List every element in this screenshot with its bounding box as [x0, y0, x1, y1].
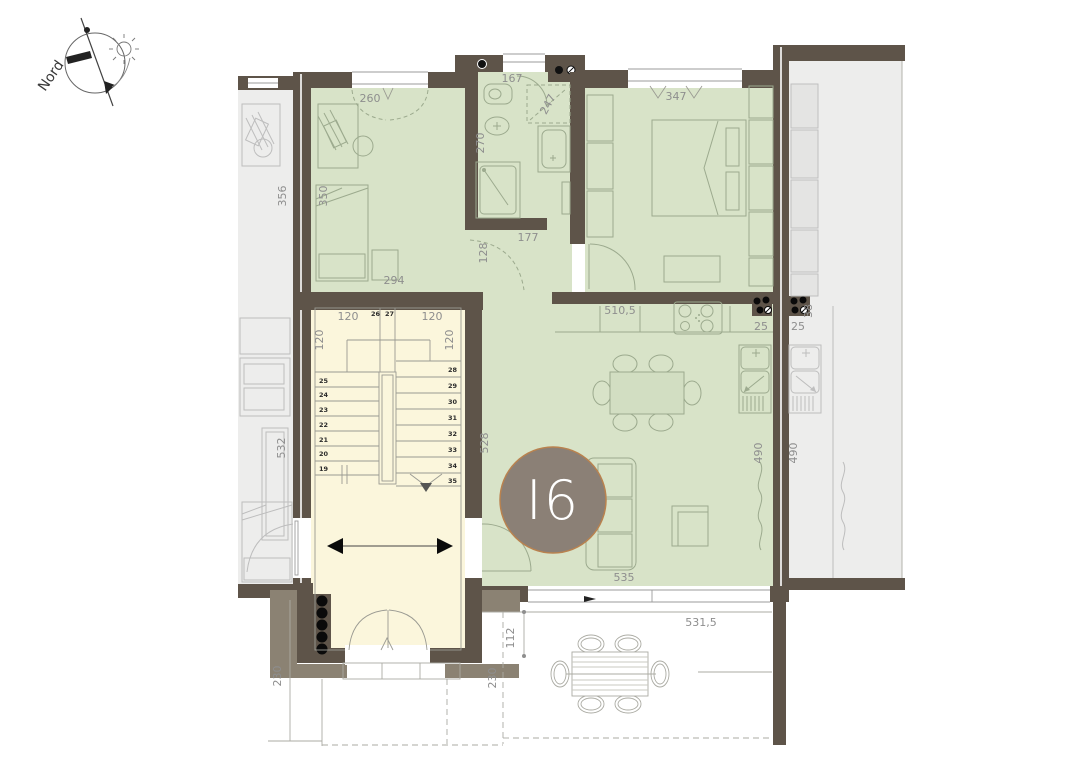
dim-terrace-depth: 112	[504, 628, 517, 649]
wardrobe	[791, 274, 818, 296]
terrace-divider-wall	[773, 598, 786, 745]
step-number: 26	[371, 310, 381, 318]
compass-label: Nord	[35, 58, 67, 95]
exterior-wall-taupe	[482, 590, 520, 612]
compass: Nord	[35, 18, 139, 106]
dim-terrace-side-depth: 230	[486, 668, 499, 689]
dim-stair-flight-right: 120	[443, 330, 456, 351]
dim-bath-wall: 177	[518, 231, 539, 244]
terrace-sliding-door	[528, 586, 770, 606]
sun-path-arc	[112, 58, 130, 87]
stairwell-fill	[311, 308, 465, 658]
step-number: 22	[319, 421, 328, 429]
dim-bedroom-window: 347	[666, 90, 687, 103]
dim-stair-top-left: 120	[338, 310, 359, 323]
wall-segment	[311, 72, 352, 88]
dim-left-unit-room: 356	[276, 186, 289, 207]
dim-study-width: 350	[317, 186, 330, 207]
step-number: 24	[319, 391, 329, 399]
left-unit-door-opening	[293, 518, 311, 578]
dim-bath-depth: 270	[474, 133, 487, 154]
step-number: 23	[319, 406, 328, 414]
dim-kitchen-run: 510,5	[604, 304, 636, 317]
step-number: 30	[448, 398, 458, 406]
dim-kitchen-wall: 490	[752, 443, 765, 464]
outdoor-table-set	[551, 635, 669, 713]
step-number: 32	[448, 430, 457, 438]
dim-study-depth: 294	[384, 274, 405, 287]
dim-hall-width: 128	[477, 243, 490, 264]
dim-terrace-width: 531,5	[685, 616, 717, 629]
exterior-wall-taupe	[445, 664, 519, 678]
unit-badge-label: I6	[526, 469, 580, 532]
dim-shaft-size: 38	[802, 304, 815, 318]
dim-stair-top-right: 120	[422, 310, 443, 323]
wall-segment	[297, 583, 313, 663]
dim-shaft-right: 25	[791, 320, 805, 333]
step-number: 20	[319, 450, 329, 458]
step-number: 33	[448, 446, 457, 454]
dim-study-window: 260	[360, 92, 381, 105]
step-number: 25	[319, 377, 329, 385]
wall-segment	[582, 70, 628, 88]
step-number: 31	[448, 414, 458, 422]
step-number: 19	[319, 465, 329, 473]
dim-living-width: 535	[614, 571, 635, 584]
sun-icon	[109, 34, 139, 64]
wardrobe	[791, 230, 818, 272]
dim-shaft-left: 25	[754, 320, 768, 333]
compass-arrowhead	[104, 81, 115, 94]
floorplan-drawing: Nord	[0, 0, 1076, 780]
wall-segment	[742, 70, 775, 88]
bath-window	[503, 50, 545, 66]
right-unit-top-wall	[773, 45, 905, 61]
wardrobe	[791, 84, 818, 128]
step-number: 35	[448, 477, 458, 485]
compass-dot	[84, 27, 90, 33]
dim-bath-width: 167	[502, 72, 523, 85]
kitchen-top-wall	[552, 292, 775, 304]
wardrobe	[791, 180, 818, 228]
compass-needle	[66, 51, 92, 64]
bath-south-wall	[465, 218, 547, 230]
shaft-symbol	[555, 66, 563, 74]
bath-bedroom-wall	[570, 72, 585, 244]
entrance-landing	[343, 663, 460, 679]
terrace-depth-dimline	[522, 610, 526, 658]
i6-door-opening	[465, 518, 482, 578]
mailbox-column	[313, 594, 331, 656]
step-number: 27	[385, 310, 394, 318]
right-unit-south-wall	[789, 578, 905, 590]
stairwell-top-wall	[293, 292, 483, 310]
dim-left-unit-kitchen: 532	[275, 438, 288, 459]
unit-badge: I6	[500, 447, 606, 553]
step-number: 34	[448, 462, 458, 470]
dim-stair-flight-left: 120	[313, 330, 326, 351]
step-number: 29	[448, 382, 458, 390]
wall-segment	[428, 72, 470, 88]
step-number: 28	[448, 366, 458, 374]
dim-left-terrace-depth: 230	[271, 666, 284, 687]
vent-pipe-dot	[478, 60, 487, 69]
dim-living-depth: 528	[478, 433, 491, 454]
floorplan-canvas: Nord	[0, 0, 1076, 780]
wardrobe	[791, 130, 818, 178]
step-number: 21	[319, 436, 329, 444]
dim-neighbor-kitchen-wall: 490	[787, 443, 800, 464]
